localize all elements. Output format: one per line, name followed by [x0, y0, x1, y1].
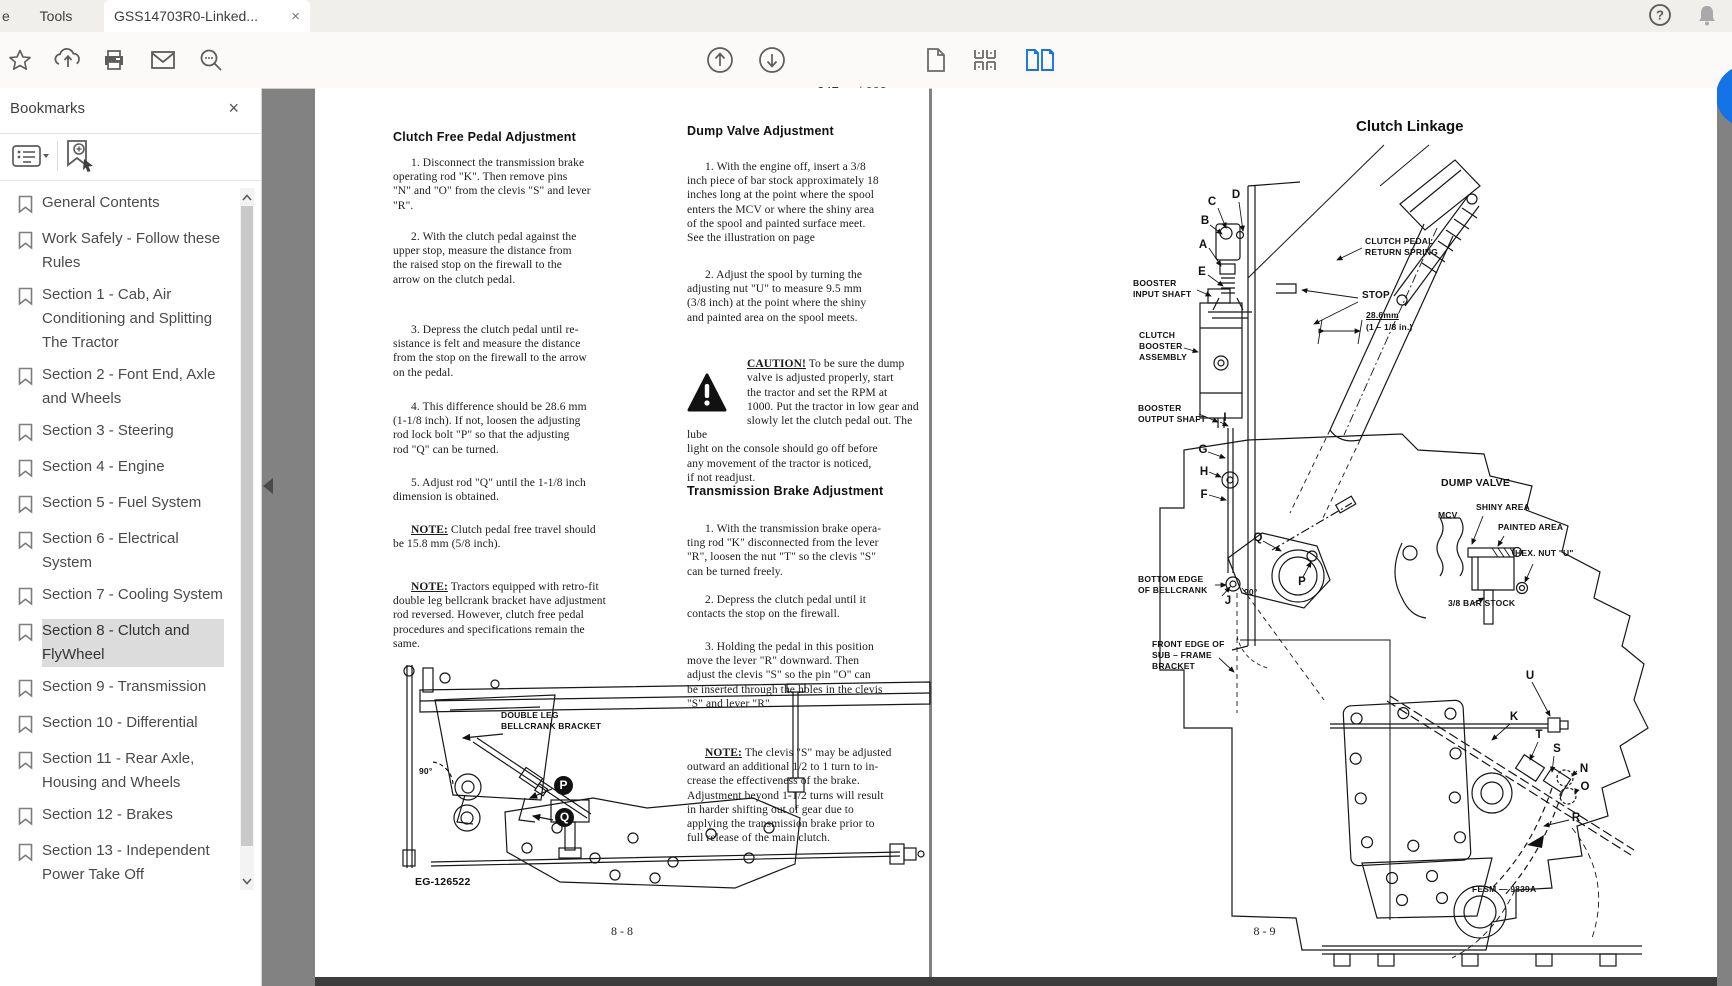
print-icon[interactable] [100, 46, 128, 74]
bookmark-item[interactable]: Section 6 - Electrical System [18, 527, 234, 575]
bookmark-flag-icon [18, 711, 42, 739]
bookmark-flag-icon [18, 583, 42, 611]
document-page-left: Clutch Free Pedal Adjustment 1. Disconne… [315, 88, 929, 977]
bookmark-item[interactable]: Section 12 - Brakes [18, 803, 234, 831]
note: NOTE: Tractors equipped with retro-fit d… [393, 580, 661, 651]
close-panel-icon[interactable]: × [228, 98, 239, 119]
paragraph: 2. With the clutch pedal against the upp… [393, 230, 661, 287]
bookmark-flag-icon [18, 619, 42, 667]
share-upload-icon[interactable] [54, 46, 82, 74]
previous-page-icon[interactable] [706, 46, 734, 74]
heading-dump-valve: Dump Valve Adjustment [687, 124, 925, 138]
label-painted-area: PAINTED AREA [1498, 522, 1563, 533]
label-booster-output: BOOSTER OUTPUT SHAFT [1138, 403, 1206, 425]
label-hex-nut: HEX. NUT "U" [1515, 548, 1574, 559]
diagram-letter-u: U [1526, 670, 1534, 682]
bookmark-item[interactable]: Section 4 - Engine [18, 455, 234, 483]
paragraph: 4. This difference should be 28.6 mm (1-… [393, 400, 661, 457]
bookmark-item[interactable]: Section 2 - Font End, Axle and Wheels [18, 363, 234, 411]
diagram-letter-a: A [1199, 239, 1207, 251]
bookmark-item[interactable]: Section 1 - Cab, Air Conditioning and Sp… [18, 283, 234, 355]
label-mcv: MCV [1438, 510, 1458, 521]
diagram-letter-t: T [1535, 729, 1542, 741]
paragraph: 3. Depress the clutch pedal until re- si… [393, 323, 661, 380]
figure-code-right: FESM — 9839A [1472, 884, 1536, 895]
tab-bar: e Tools GSS14703R0-Linked... × ? [0, 0, 1732, 33]
label-dimension-mm: 28.6mm [1366, 310, 1399, 321]
bookmarks-list: General Contents Work Safely - Follow th… [18, 191, 234, 881]
email-icon[interactable] [149, 46, 177, 74]
heading-clutch-free-pedal: Clutch Free Pedal Adjustment [393, 130, 661, 144]
figure-label-bracket: DOUBLE LEG BELLCRANK BRACKET [501, 710, 601, 732]
tab-tools[interactable]: Tools [12, 0, 100, 32]
diagram-letter-f: F [1200, 489, 1207, 501]
diagram-letter-g: G [1199, 444, 1208, 456]
page-number-right: 8 - 9 [872, 924, 1657, 939]
bookmark-flag-icon [18, 527, 42, 575]
scroll-up-icon[interactable] [241, 190, 253, 204]
single-page-view-icon[interactable] [922, 46, 950, 74]
figure-callout-q: Q [555, 808, 574, 827]
notifications-bell-icon[interactable] [1696, 3, 1718, 32]
bookmarks-header: Bookmarks × [0, 88, 261, 134]
bookmark-flag-icon [18, 747, 42, 795]
bookmark-flag-icon [18, 455, 42, 483]
bookmark-item-active[interactable]: Section 8 - Clutch and FlyWheel [18, 619, 234, 667]
bookmark-item[interactable]: Section 5 - Fuel System [18, 491, 234, 519]
diagram-title: Clutch Linkage [1356, 118, 1464, 135]
bookmark-flag-icon [18, 839, 42, 881]
diagram-letter-e: E [1198, 266, 1206, 278]
next-page-edge [315, 977, 1717, 986]
label-booster-input: BOOSTER INPUT SHAFT [1133, 278, 1191, 300]
bookmark-item[interactable]: Section 3 - Steering [18, 419, 234, 447]
tools-panel-fab[interactable] [1716, 65, 1732, 127]
collapse-panel-icon[interactable] [263, 478, 273, 494]
bookmark-item[interactable]: Section 7 - Cooling System [18, 583, 234, 611]
next-page-icon[interactable] [758, 46, 786, 74]
diagram-letter-k: K [1510, 711, 1518, 723]
label-front-edge: FRONT EDGE OF SUB – FRAME BRACKET [1152, 639, 1225, 672]
bookmarks-toolbar [0, 133, 261, 181]
bookmark-star-icon[interactable] [6, 46, 34, 74]
bookmark-flag-icon [18, 491, 42, 519]
note: NOTE: Clutch pedal free travel should be… [393, 523, 661, 551]
diagram-letter-i: I [1223, 412, 1226, 424]
figure-callout-p: P [554, 776, 573, 795]
diagram-letter-b: B [1201, 215, 1209, 227]
label-clutch-booster: CLUTCH BOOSTER ASSEMBLY [1139, 330, 1187, 363]
bookmark-item[interactable]: Section 11 - Rear Axle, Housing and Whee… [18, 747, 234, 795]
paragraph: 1. With the engine off, insert a 3/8 inc… [687, 160, 925, 245]
diagram-letter-n: N [1580, 763, 1588, 775]
label-dimension-in: (1 – 1/8 in.) [1366, 322, 1413, 333]
label-bar-stock: 3/8 BAR STOCK [1448, 598, 1515, 609]
scroll-down-icon[interactable] [241, 874, 253, 888]
bookmark-item[interactable]: General Contents [18, 191, 234, 219]
bookmarks-title: Bookmarks [10, 100, 85, 117]
bookmark-flag-icon [18, 283, 42, 355]
bookmark-item[interactable]: Section 10 - Differential [18, 711, 234, 739]
label-angle-90: 90° [1244, 587, 1257, 598]
paragraph: 2. Depress the clutch pedal until it con… [687, 593, 925, 621]
search-icon[interactable] [197, 46, 225, 74]
bookmarks-panel: Bookmarks × General Contents Work Safely… [0, 88, 262, 986]
diagram-letter-d: D [1232, 189, 1240, 201]
bookmark-item[interactable]: Work Safely - Follow these Rules [18, 227, 234, 275]
divider [57, 141, 58, 171]
diagram-letter-p: P [1298, 576, 1306, 588]
label-stop: STOP [1362, 290, 1390, 301]
clutch-linkage-drawing [932, 88, 1717, 977]
bookmark-options-icon[interactable] [12, 143, 50, 174]
diagram-letter-s: S [1553, 743, 1561, 755]
continuous-scroll-view-icon[interactable] [972, 46, 1000, 74]
bellcrank-figure-drawing [355, 663, 930, 903]
paragraph: 1. With the transmission brake opera- ti… [687, 522, 925, 579]
svg-text:?: ? [1656, 8, 1664, 23]
paragraph: 1. Disconnect the transmission brake ope… [393, 156, 661, 213]
acrobat-window: e Tools GSS14703R0-Linked... × ? [0, 0, 1732, 986]
label-return-spring: CLUTCH PEDAL RETURN SPRING [1365, 236, 1438, 258]
caution-block: CAUTION! To be sure the dump valve is ad… [687, 343, 925, 485]
bookmark-flag-icon [18, 363, 42, 411]
two-page-view-icon[interactable] [1026, 46, 1054, 74]
document-page-right: Clutch Linkage C D B A E I G H F Q P J U… [932, 88, 1717, 977]
diagram-letter-o: O [1581, 781, 1590, 793]
document-tab-title: GSS14703R0-Linked... [114, 8, 258, 24]
diagram-letter-c: C [1208, 196, 1216, 208]
clipped-tab-fragment: e [2, 8, 10, 24]
label-dump-valve: DUMP VALVE [1441, 477, 1510, 490]
bookmark-item[interactable]: Section 9 - Transmission [18, 675, 234, 703]
scrollbar-thumb[interactable] [241, 206, 253, 846]
bookmark-flag-icon [18, 191, 42, 219]
bookmarks-scrollbar[interactable] [240, 188, 254, 890]
page-number-left: 8 - 8 [315, 924, 929, 939]
help-icon[interactable]: ? [1648, 3, 1672, 32]
heading-transmission-brake: Transmission Brake Adjustment [687, 484, 925, 498]
bookmark-flag-icon [18, 803, 42, 831]
diagram-letter-q: Q [1254, 532, 1263, 544]
figure-code: EG-126522 [415, 876, 471, 889]
bookmark-item[interactable]: Section 13 - Independent Power Take Off [18, 839, 234, 881]
diagram-letter-h: H [1200, 466, 1208, 478]
figure-label-angle: 90° [419, 766, 432, 777]
paragraph: 2. Adjust the spool by turning the adjus… [687, 268, 925, 325]
diagram-letter-r: R [1572, 812, 1580, 824]
paragraph: 5. Adjust rod "Q" until the 1-1/8 inch d… [393, 476, 661, 504]
diagram-letter-j: J [1225, 595, 1231, 607]
bookmark-flag-icon [18, 675, 42, 703]
viewer-toolbar: 247 / 603 [0, 32, 1732, 89]
close-tab-icon[interactable]: × [291, 9, 300, 24]
bookmark-flag-icon [18, 227, 42, 275]
bookmark-flag-icon [18, 419, 42, 447]
new-bookmark-icon[interactable] [64, 139, 96, 178]
tab-document[interactable]: GSS14703R0-Linked... × [104, 0, 310, 32]
label-bottom-edge: BOTTOM EDGE OF BELLCRANK [1138, 574, 1207, 596]
label-shiny-area: SHINY AREA [1476, 502, 1530, 513]
warning-triangle-icon [687, 359, 727, 417]
